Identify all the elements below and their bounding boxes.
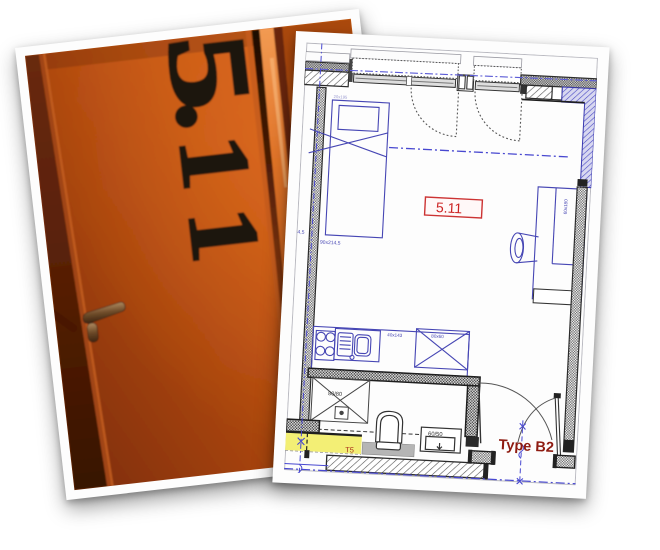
svg-text:4,5: 4,5: [297, 229, 304, 235]
svg-text:Type B2: Type B2: [498, 437, 554, 456]
svg-text:80x60: 80x60: [431, 333, 444, 339]
svg-text:60/50: 60/50: [428, 431, 443, 438]
svg-text:20x195: 20x195: [333, 94, 348, 100]
svg-text:40x143: 40x143: [387, 332, 403, 338]
svg-text:80/80: 80/80: [328, 391, 342, 398]
svg-text:5: 5: [144, 27, 276, 116]
svg-text:T5: T5: [345, 445, 354, 454]
svg-text:60x180: 60x180: [563, 199, 569, 215]
svg-text:90x214,5: 90x214,5: [320, 240, 341, 247]
svg-text:5.11: 5.11: [436, 199, 463, 216]
